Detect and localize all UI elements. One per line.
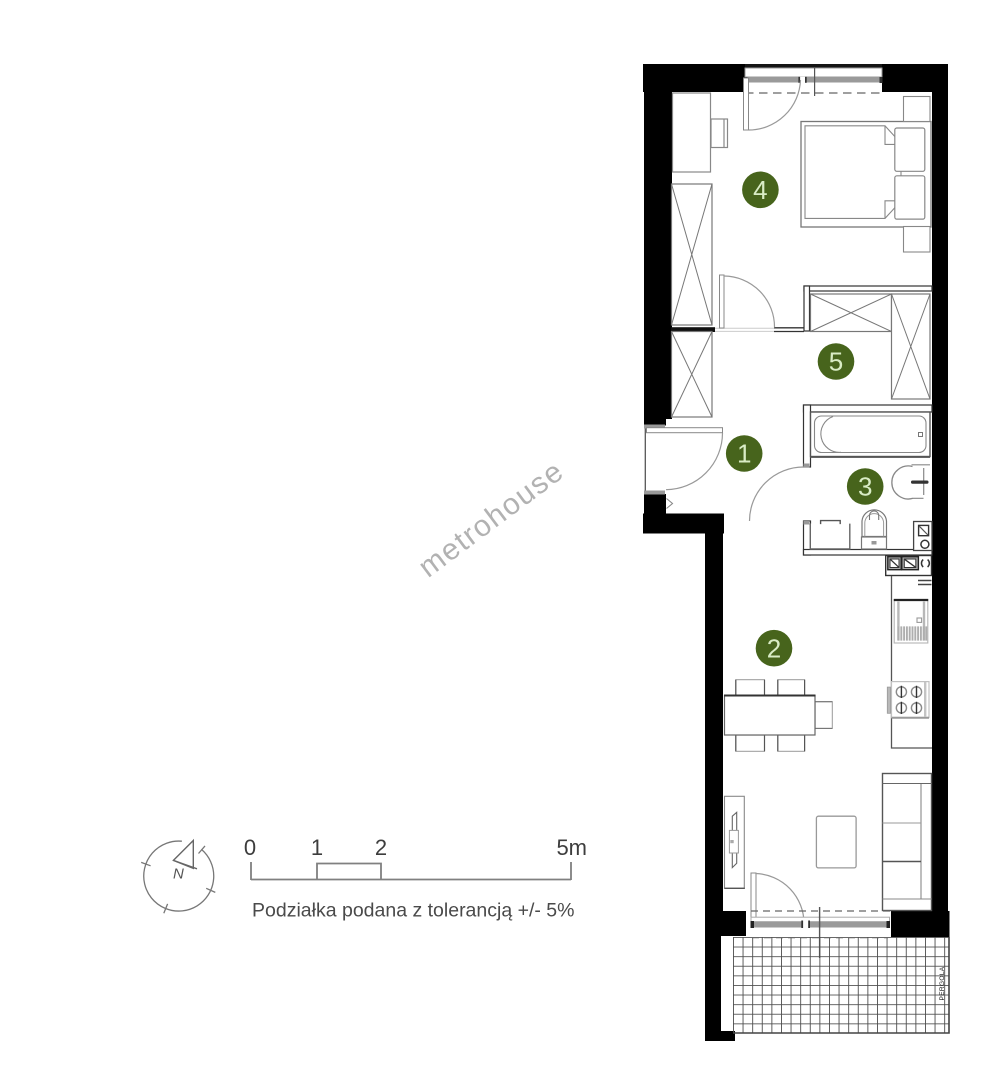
- svg-text:N: N: [173, 866, 184, 883]
- svg-text:4: 4: [753, 175, 767, 205]
- svg-text:0: 0: [244, 835, 256, 860]
- svg-text:3: 3: [858, 472, 872, 502]
- svg-text:2: 2: [767, 633, 781, 663]
- svg-text:2: 2: [375, 835, 387, 860]
- svg-text:5m: 5m: [556, 835, 587, 860]
- svg-text:1: 1: [311, 835, 323, 860]
- svg-text:5: 5: [829, 347, 843, 377]
- svg-text:Podziałka podana z tolerancją: Podziałka podana z tolerancją +/- 5%: [252, 900, 575, 922]
- svg-text:metrohouse: metrohouse: [412, 454, 570, 584]
- svg-text:1: 1: [737, 439, 751, 469]
- svg-text:PERGOLA: PERGOLA: [939, 966, 946, 1000]
